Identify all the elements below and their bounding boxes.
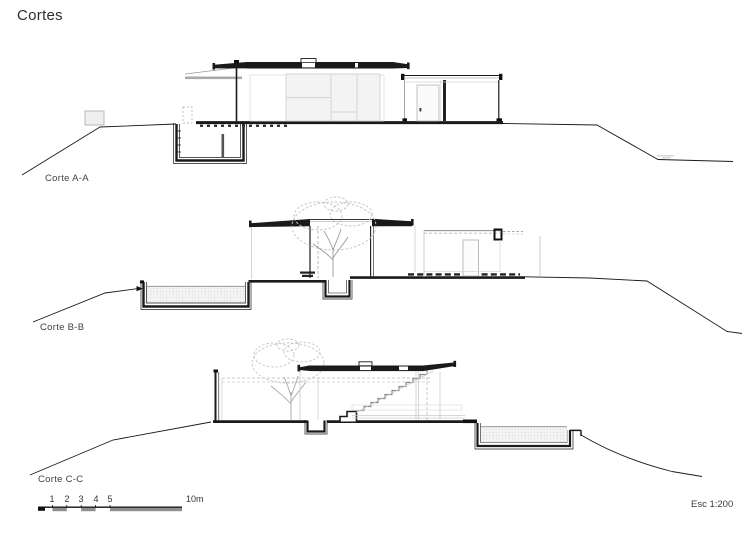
scale-bar-drawing [38,505,182,511]
page-title: Cortes [17,7,63,24]
scale-end-label: 10m [186,494,204,504]
section-label-corte-b-b: Corte B-B [40,322,84,333]
scale-tick-4: 4 [93,494,98,504]
corte-c-c-drawing [30,339,702,477]
scale-note: Esc 1:200 [691,499,733,510]
corte-b-b-drawing [33,197,742,334]
section-label-corte-c-c: Corte C-C [38,474,83,485]
scale-tick-3: 3 [78,494,83,504]
drawing-sheet: Cortes Corte A-A Corte B-B Corte C-C 1 2… [0,0,750,556]
sections-drawing [0,0,750,556]
corte-a-a-drawing [22,59,733,176]
scale-tick-2: 2 [64,494,69,504]
scale-tick-1: 1 [49,494,54,504]
section-label-corte-a-a: Corte A-A [45,173,89,184]
scale-tick-5: 5 [107,494,112,504]
